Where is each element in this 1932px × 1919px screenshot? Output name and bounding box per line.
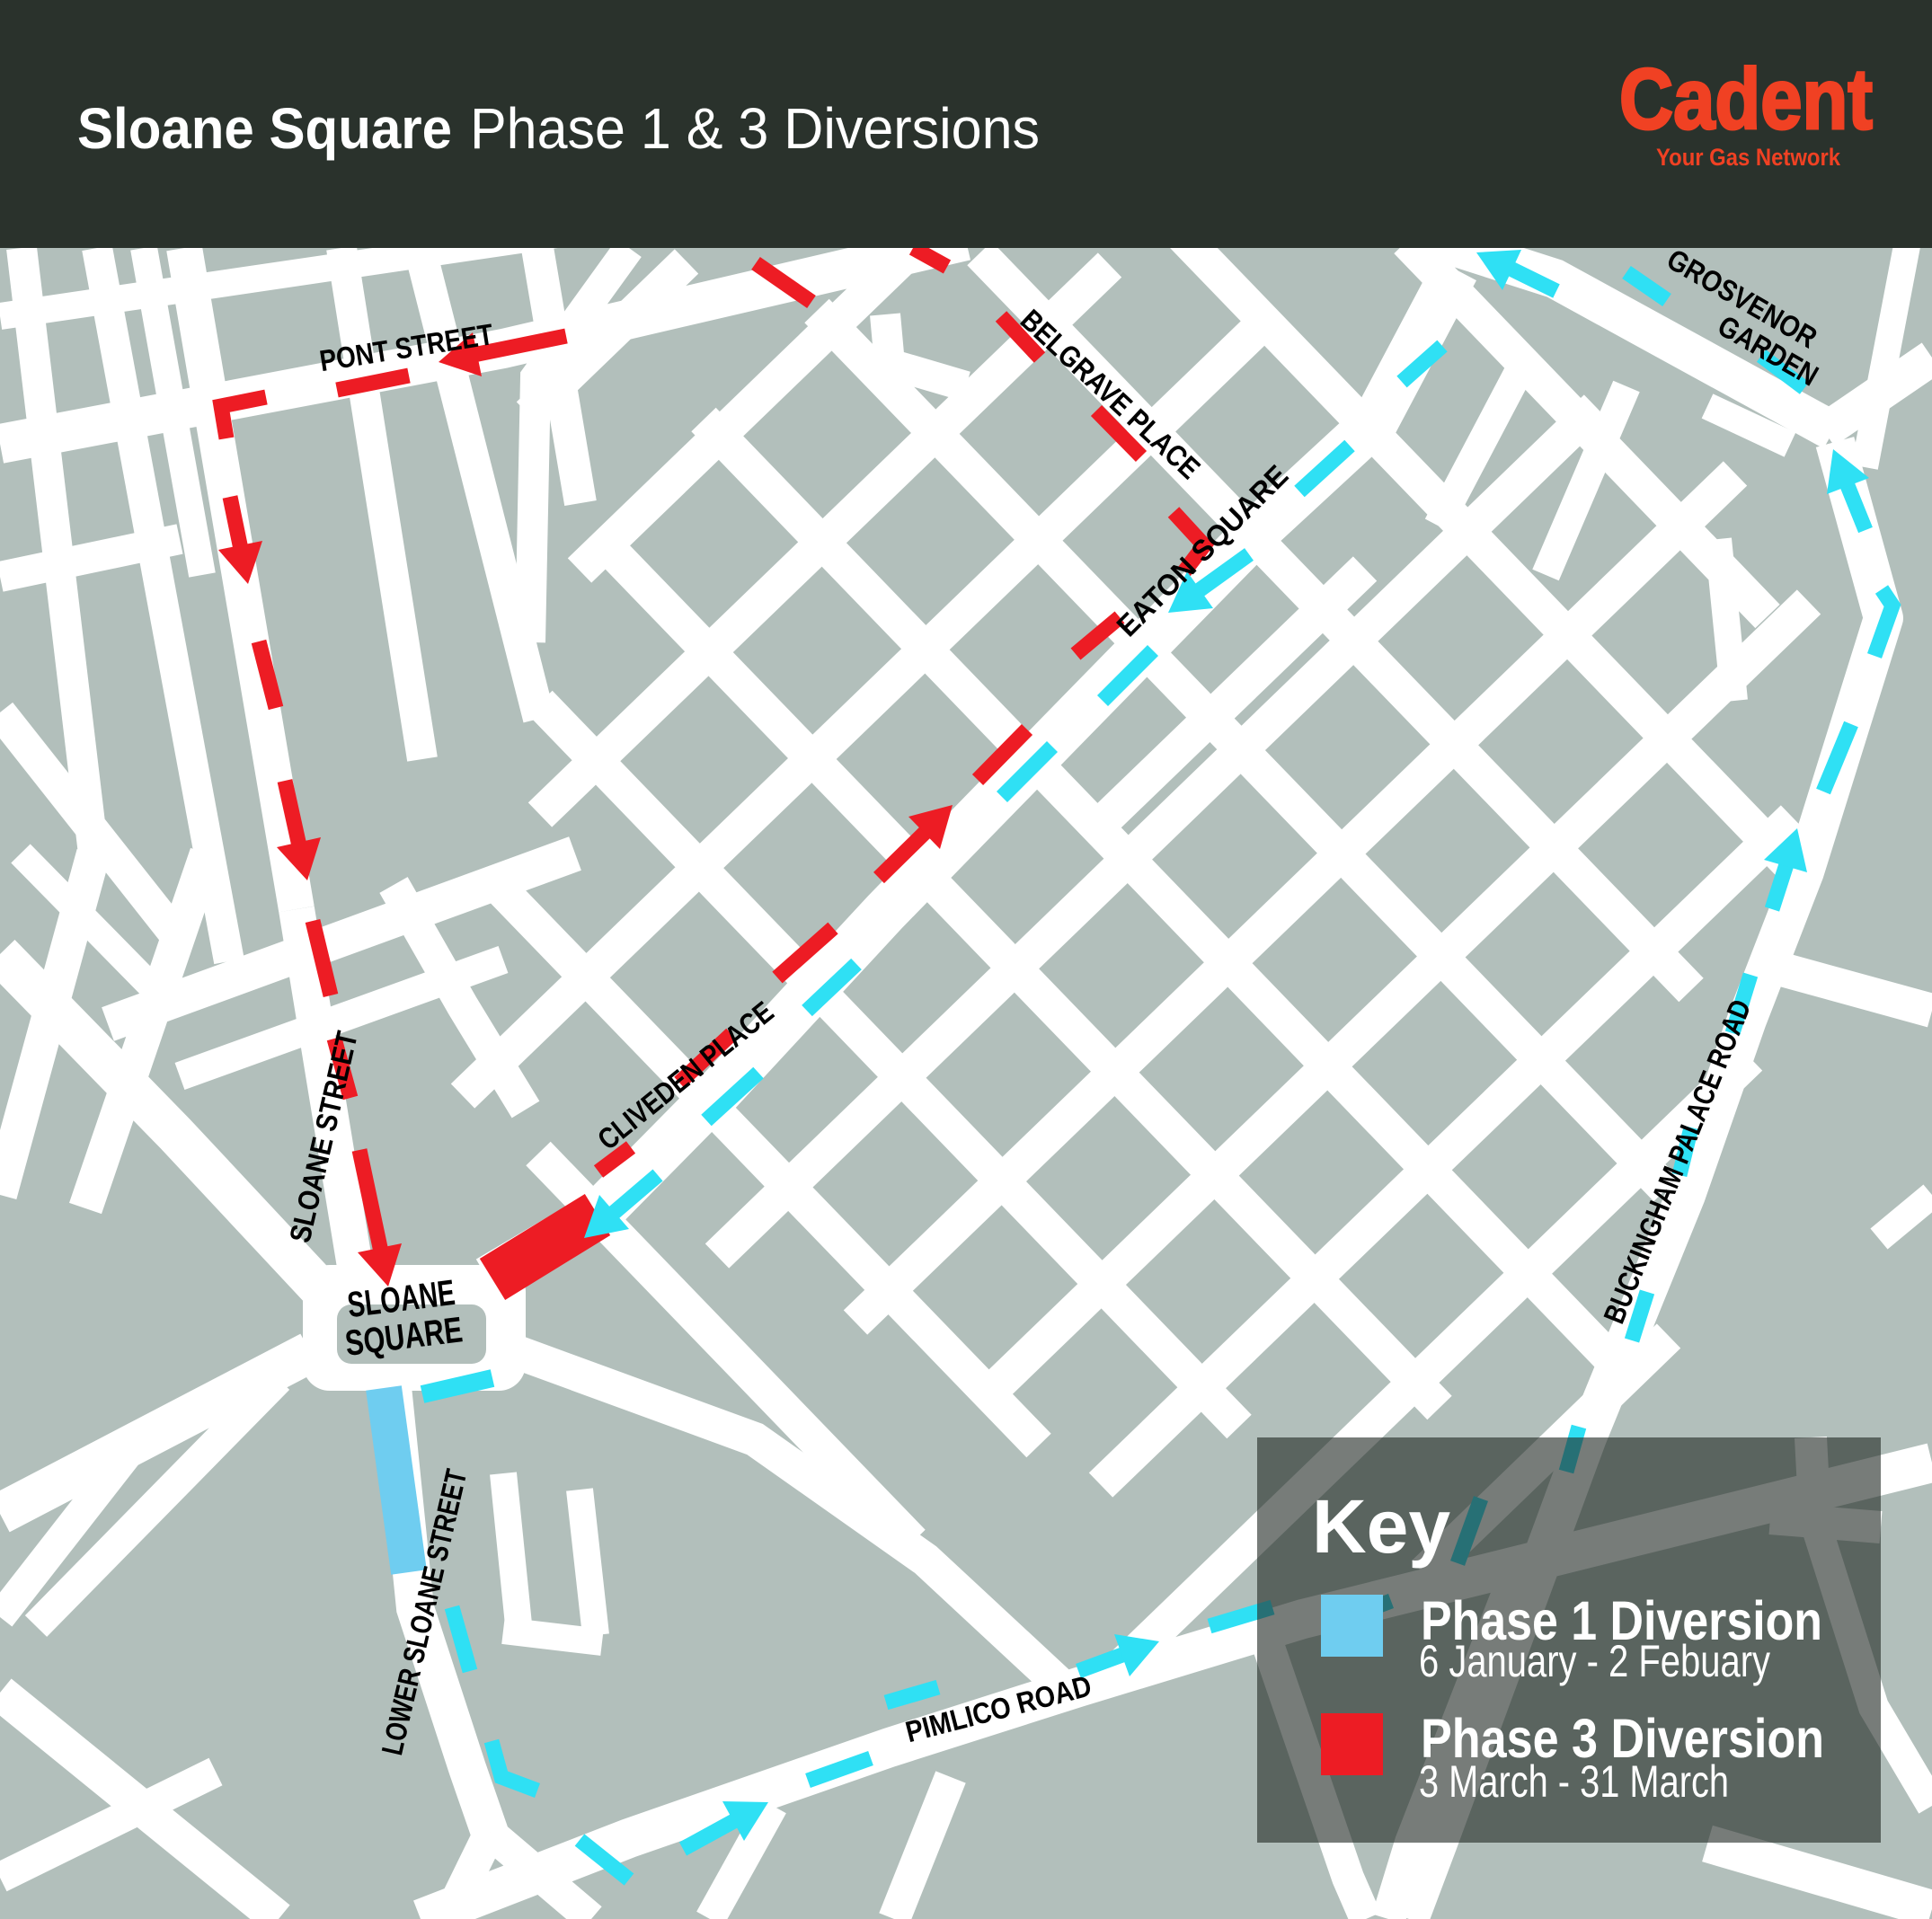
svg-text:Your Gas Network: Your Gas Network — [1656, 144, 1841, 171]
svg-text:Cadent: Cadent — [1619, 51, 1873, 147]
svg-text:3 March - 31 March: 3 March - 31 March — [1419, 1756, 1729, 1807]
svg-text:6 January - 2 Febuary: 6 January - 2 Febuary — [1419, 1636, 1770, 1686]
svg-text:Sloane Square: Sloane Square — [77, 96, 452, 161]
svg-text:Key: Key — [1312, 1484, 1450, 1569]
svg-text:Phase 1 & 3 Diversions: Phase 1 & 3 Diversions — [470, 96, 1040, 161]
